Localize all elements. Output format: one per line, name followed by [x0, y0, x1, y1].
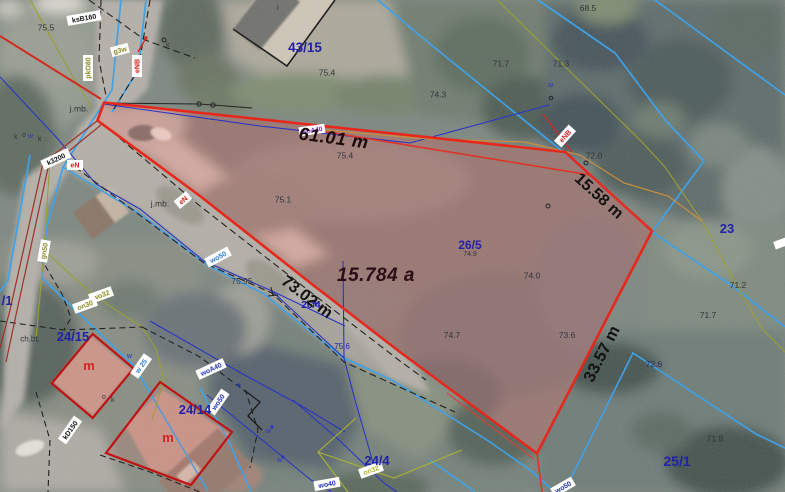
- svg-text:o: o: [102, 394, 106, 401]
- svg-text:k: k: [166, 42, 170, 49]
- svg-text:24/4: 24/4: [364, 453, 390, 468]
- svg-text:k: k: [111, 397, 115, 404]
- svg-text:w: w: [265, 428, 272, 435]
- svg-text:71.3: 71.3: [553, 59, 570, 69]
- svg-text:26/5: 26/5: [458, 238, 482, 252]
- svg-text:w: w: [27, 133, 34, 140]
- svg-text:75.95: 75.95: [231, 276, 253, 286]
- svg-text:75.1: 75.1: [275, 195, 292, 205]
- svg-text:71.8: 71.8: [707, 434, 724, 444]
- svg-text:71.7: 71.7: [493, 59, 510, 69]
- svg-text:71.2: 71.2: [730, 280, 747, 290]
- svg-text:k: k: [38, 136, 42, 143]
- svg-text:w: w: [547, 82, 554, 89]
- svg-text:j.mb.: j.mb.: [69, 104, 88, 114]
- svg-text:73.6: 73.6: [559, 330, 576, 340]
- svg-text:m: m: [162, 430, 174, 445]
- svg-text:eNB: eNB: [135, 59, 142, 73]
- svg-text:74.0: 74.0: [524, 271, 541, 281]
- svg-text:pkO80: pkO80: [86, 57, 93, 79]
- svg-text:j.mb.: j.mb.: [150, 199, 169, 209]
- svg-text:24/14: 24/14: [179, 402, 212, 417]
- svg-text:68.5: 68.5: [580, 3, 597, 13]
- svg-text:/1: /1: [2, 293, 13, 308]
- svg-text:74.9: 74.9: [463, 251, 477, 258]
- svg-text:75.6: 75.6: [334, 342, 350, 351]
- svg-text:eN: eN: [71, 163, 80, 170]
- svg-text:15.784 a: 15.784 a: [337, 265, 415, 286]
- svg-text:w: w: [276, 457, 283, 464]
- svg-text:74.7: 74.7: [444, 330, 461, 340]
- svg-text:m: m: [83, 358, 95, 373]
- svg-text:o: o: [22, 132, 26, 139]
- svg-text:72.0: 72.0: [586, 151, 603, 161]
- svg-text:75.4: 75.4: [319, 68, 336, 78]
- svg-text:w: w: [126, 353, 133, 360]
- svg-text:23: 23: [720, 221, 734, 236]
- svg-text:24/15: 24/15: [57, 329, 90, 344]
- svg-text:43/15: 43/15: [288, 40, 322, 55]
- svg-text:k: k: [14, 134, 18, 141]
- svg-text:75.4: 75.4: [337, 151, 354, 161]
- svg-text:71.7: 71.7: [700, 310, 717, 320]
- svg-text:ch.bt.: ch.bt.: [20, 335, 40, 344]
- svg-text:25/1: 25/1: [663, 453, 690, 469]
- svg-text:74.3: 74.3: [430, 90, 447, 100]
- svg-text:72.6: 72.6: [646, 359, 663, 369]
- svg-text:75.5: 75.5: [38, 23, 55, 33]
